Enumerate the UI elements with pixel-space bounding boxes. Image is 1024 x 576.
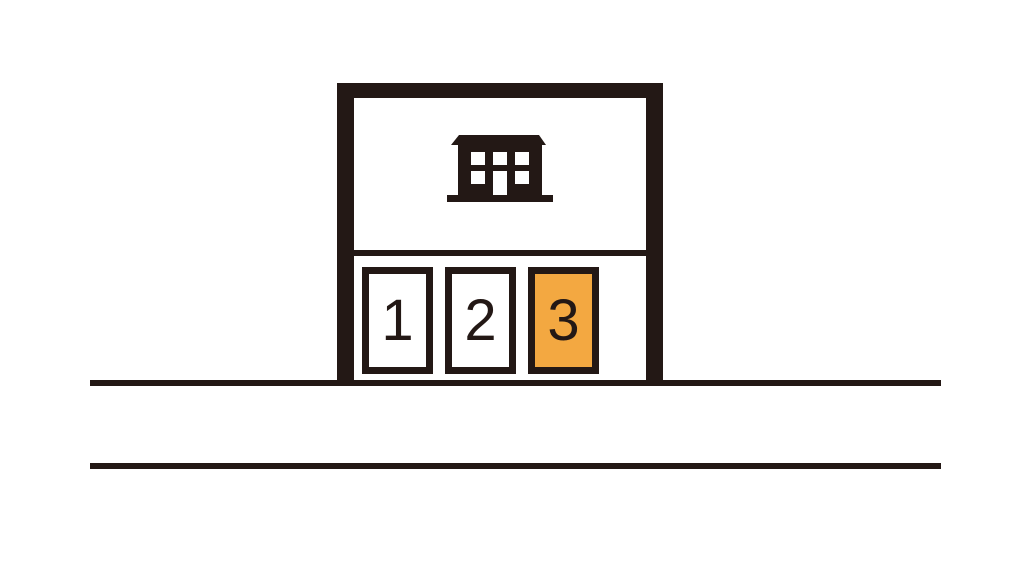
building-outline: 1 2 3 bbox=[337, 83, 663, 383]
parking-space-3-number: 3 bbox=[547, 292, 579, 350]
parking-space-2-number: 2 bbox=[464, 292, 496, 350]
parking-space-1: 1 bbox=[362, 267, 433, 374]
building-icon bbox=[445, 133, 555, 203]
road-line-bottom bbox=[90, 463, 941, 469]
parking-map-diagram: 1 2 3 bbox=[0, 0, 1024, 576]
parking-space-1-number: 1 bbox=[381, 292, 413, 350]
road-line-top bbox=[90, 380, 941, 386]
building-divider-line bbox=[351, 250, 649, 256]
parking-space-2: 2 bbox=[445, 267, 516, 374]
parking-space-3-highlighted: 3 bbox=[528, 267, 599, 374]
